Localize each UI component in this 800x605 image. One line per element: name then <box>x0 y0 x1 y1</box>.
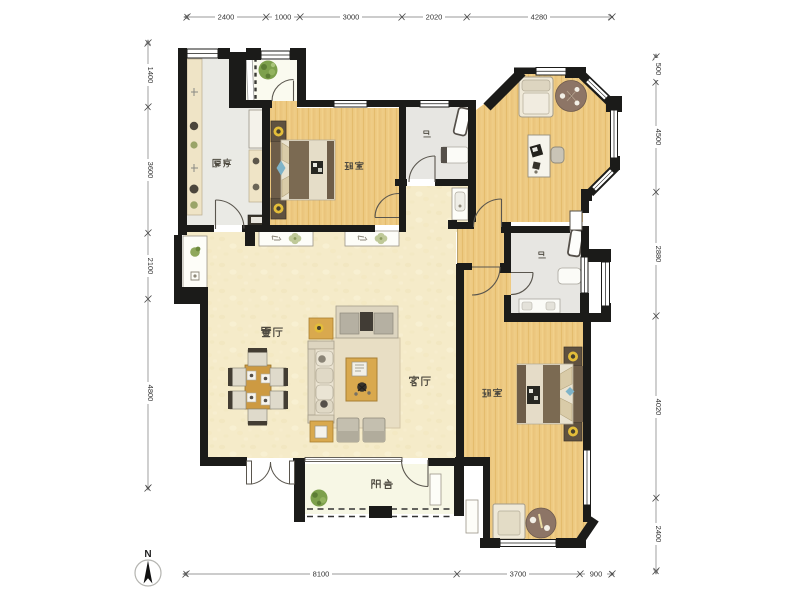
svg-text:2880: 2880 <box>654 246 663 263</box>
svg-text:2400: 2400 <box>654 526 663 543</box>
svg-text:4280: 4280 <box>531 13 548 22</box>
svg-text:N: N <box>144 549 151 560</box>
svg-text:900: 900 <box>590 570 603 579</box>
svg-text:3000: 3000 <box>343 13 360 22</box>
svg-text:1000: 1000 <box>275 13 292 22</box>
svg-text:4020: 4020 <box>654 399 663 416</box>
svg-text:2020: 2020 <box>426 13 443 22</box>
svg-text:2400: 2400 <box>218 13 235 22</box>
svg-text:1400: 1400 <box>146 67 155 84</box>
svg-text:2100: 2100 <box>146 258 155 275</box>
svg-text:500: 500 <box>654 63 663 76</box>
svg-text:8100: 8100 <box>313 570 330 579</box>
svg-text:3600: 3600 <box>146 162 155 179</box>
svg-text:4500: 4500 <box>654 129 663 146</box>
svg-text:3700: 3700 <box>510 570 527 579</box>
svg-text:4800: 4800 <box>146 385 155 402</box>
